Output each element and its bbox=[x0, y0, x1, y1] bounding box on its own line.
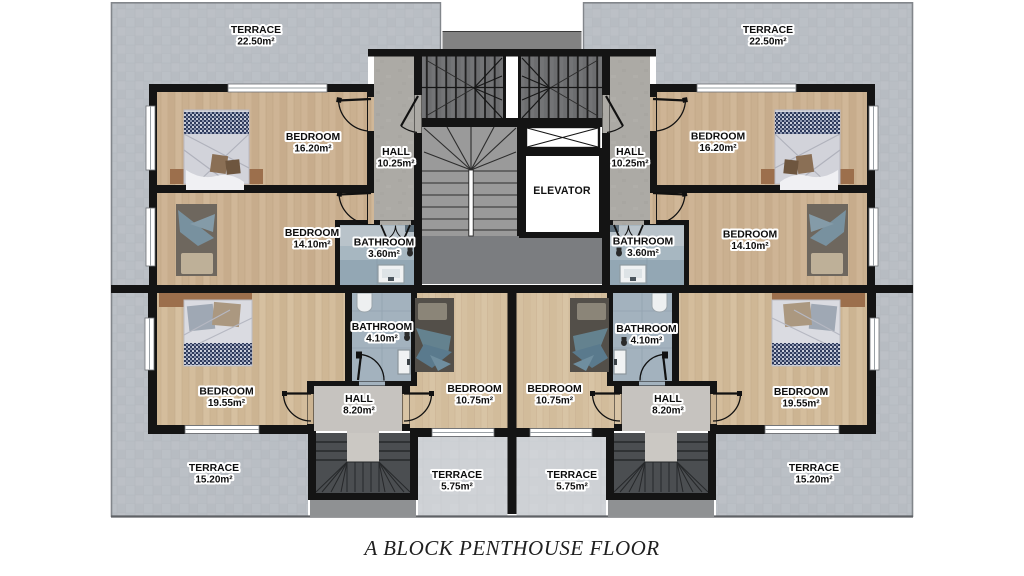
svg-text:TERRACE: TERRACE bbox=[743, 25, 793, 36]
svg-text:BATHROOM: BATHROOM bbox=[352, 322, 412, 333]
svg-text:A BLOCK PENTHOUSE FLOOR: A BLOCK PENTHOUSE FLOOR bbox=[362, 536, 659, 560]
svg-text:BATHROOM: BATHROOM bbox=[613, 237, 673, 248]
svg-text:8.20m²: 8.20m² bbox=[343, 406, 375, 417]
svg-text:BEDROOM: BEDROOM bbox=[527, 384, 581, 395]
svg-text:10.75m²: 10.75m² bbox=[456, 396, 494, 407]
svg-text:3.60m²: 3.60m² bbox=[627, 248, 659, 259]
svg-text:5.75m²: 5.75m² bbox=[556, 482, 588, 493]
svg-text:16.20m²: 16.20m² bbox=[699, 143, 737, 154]
svg-text:BATHROOM: BATHROOM bbox=[354, 238, 414, 249]
svg-text:TERRACE: TERRACE bbox=[231, 25, 281, 36]
svg-text:19.55m²: 19.55m² bbox=[208, 398, 246, 409]
svg-text:10.75m²: 10.75m² bbox=[536, 396, 574, 407]
svg-text:TERRACE: TERRACE bbox=[432, 470, 482, 481]
svg-text:15.20m²: 15.20m² bbox=[795, 475, 833, 486]
svg-text:HALL: HALL bbox=[382, 147, 410, 158]
svg-text:10.25m²: 10.25m² bbox=[377, 159, 415, 170]
svg-text:4.10m²: 4.10m² bbox=[366, 334, 398, 345]
svg-text:TERRACE: TERRACE bbox=[547, 470, 597, 481]
svg-text:HALL: HALL bbox=[345, 394, 373, 405]
svg-text:TERRACE: TERRACE bbox=[789, 463, 839, 474]
svg-text:BEDROOM: BEDROOM bbox=[447, 384, 501, 395]
svg-text:BEDROOM: BEDROOM bbox=[286, 132, 340, 143]
svg-text:BEDROOM: BEDROOM bbox=[691, 132, 745, 143]
svg-text:BEDROOM: BEDROOM bbox=[199, 387, 253, 398]
svg-text:22.50m²: 22.50m² bbox=[237, 37, 275, 48]
svg-text:15.20m²: 15.20m² bbox=[195, 475, 233, 486]
svg-text:4.10m²: 4.10m² bbox=[631, 336, 663, 347]
svg-text:HALL: HALL bbox=[654, 394, 682, 405]
svg-text:10.25m²: 10.25m² bbox=[611, 159, 649, 170]
svg-text:8.20m²: 8.20m² bbox=[652, 406, 684, 417]
svg-text:BATHROOM: BATHROOM bbox=[616, 324, 676, 335]
svg-text:BEDROOM: BEDROOM bbox=[723, 230, 777, 241]
svg-text:TERRACE: TERRACE bbox=[189, 463, 239, 474]
svg-text:HALL: HALL bbox=[616, 147, 644, 158]
svg-text:22.50m²: 22.50m² bbox=[749, 37, 787, 48]
svg-text:ELEVATOR: ELEVATOR bbox=[533, 185, 591, 197]
svg-text:19.55m²: 19.55m² bbox=[782, 399, 820, 410]
svg-text:BEDROOM: BEDROOM bbox=[285, 228, 339, 239]
svg-text:BEDROOM: BEDROOM bbox=[774, 387, 828, 398]
svg-text:5.75m²: 5.75m² bbox=[441, 482, 473, 493]
svg-text:14.10m²: 14.10m² bbox=[731, 241, 769, 252]
svg-text:3.60m²: 3.60m² bbox=[368, 249, 400, 260]
svg-text:16.20m²: 16.20m² bbox=[294, 144, 332, 155]
svg-text:14.10m²: 14.10m² bbox=[293, 240, 331, 251]
